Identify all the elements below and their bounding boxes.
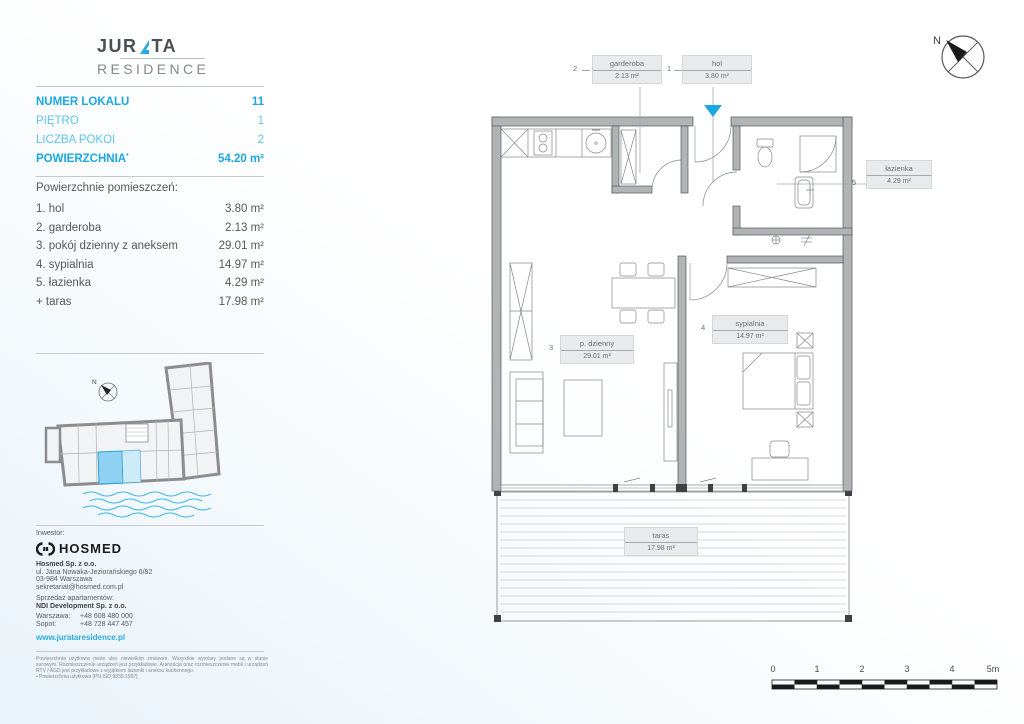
investor-details: Hosmed Sp. z o.o. ul. Jana Nowaka-Jezior… [36,561,264,611]
door-arcs [652,126,737,300]
investor-address-line1: ul. Jana Nowaka-Jeziorańskiego 6/82 [36,569,264,577]
sales-company: NDI Development Sp. z o.o. [36,603,127,610]
room-row-garderoba: 2. garderoba 2.13 m² [36,219,264,238]
kitchen-counter [501,129,611,157]
leader-lines [640,87,866,184]
summary-row-numer-lokalu: NUMER LOKALU 11 [36,92,264,111]
investor-email: sekretariat@hosmed.com.pl [36,584,264,592]
investor-heading: Inwestor: [36,530,64,538]
hosmed-logo: HOSMED [36,541,122,556]
sail-icon [139,40,151,55]
terrace-outline [497,492,849,621]
room-name: 1. hol [36,203,64,215]
sales-heading: Sprzedaż apartamentów: [36,595,264,603]
plan-label-p-dzienny: p. dzienny 29.01 m² [560,335,634,364]
entrance-arrow-icon [704,105,722,117]
room-name: 3. pokój dzienny z aneksem [36,240,178,252]
compass-icon [942,36,984,78]
scale-bar [772,680,997,689]
room-area: 14.97 m² [219,259,264,271]
mini-compass-label: N [92,379,97,386]
summary-value: 11 [252,96,264,108]
brand-text-jur: JUR [97,37,138,55]
room-row-taras: + taras 17.98 m² [36,293,264,312]
room-number-lazienka: 5 [852,178,856,187]
bedroom-furniture [728,268,816,480]
legal-note: Powierzchnia użytkowa może ulec niewielk… [36,656,268,680]
scale-label-1: 1 [814,664,819,674]
water-waves-icon [83,492,211,517]
plan-label-taras: taras 17.98 m² [624,527,698,556]
phone-number: +48 608 480 000 [80,613,216,621]
room-row-pokoj-dzienny: 3. pokój dzienny z aneksem 29.01 m² [36,237,264,256]
plan-label-lazienka: łazienka 4.29 m² [866,160,932,189]
legal-footnote: • Powierzchnia użytkowa [PN-ISO 9836:199… [36,674,268,680]
room-name: 2. garderoba [36,222,101,234]
phone-city-label: Sopot: [36,621,80,629]
phone-list: Warszawa: +48 608 480 000 Sopot: +48 728… [36,613,216,629]
summary-label: NUMER LOKALU [36,96,129,108]
mini-compass-icon [99,383,117,401]
room-name: 4. sypialnia [36,259,94,271]
scale-label-3: 3 [904,664,909,674]
room-area-list: Powierzchnie pomieszczeń: 1. hol 3.80 m²… [36,182,264,311]
room-area: 4.29 m² [225,277,264,289]
room-area: 17.98 m² [219,296,264,308]
room-number-hol: 1 [667,64,671,73]
scale-label-4: 4 [949,664,954,674]
summary-label: LICZBA POKOI [36,134,115,146]
logo-underline [120,58,205,59]
room-area: 3.80 m² [225,203,264,215]
room-name: 5. łazienka [36,277,91,289]
room-area: 29.01 m² [219,240,264,252]
divider [36,86,264,87]
investor-address-line2: 03-984 Warszawa [36,576,264,584]
divider [36,176,264,177]
room-list-heading: Powierzchnie pomieszczeń: [36,182,264,194]
summary-table: NUMER LOKALU 11 PIĘTRO 1 LICZBA POKOI 2 … [36,92,264,168]
footnote-marker: • [126,152,128,159]
room-number-sypialnia: 4 [701,323,705,332]
site-plan-map: N [38,362,266,520]
summary-row-liczba-pokoi: LICZBA POKOI 2 [36,130,264,149]
room-number-garderoba: 2 [573,64,577,73]
garderoba-wardrobe [621,130,636,184]
summary-value: 1 [258,115,264,127]
summary-value: 2 [258,134,264,146]
compass-north-label: N [933,35,941,47]
summary-label: POWIERZCHNIA• [36,152,129,165]
room-row-lazienka: 5. łazienka 4.29 m² [36,274,264,293]
room-area: 2.13 m² [225,222,264,234]
label-dash [674,70,682,71]
scale-label-0: 0 [770,664,775,674]
room-row-sypialnia: 4. sypialnia 14.97 m² [36,256,264,275]
bathroom-fixtures [757,136,836,246]
divider [36,651,264,652]
room-name: + taras [36,296,71,308]
summary-value: 54.20 m² [218,153,264,165]
scale-label-5m: 5m [987,664,1000,674]
brand-text-ta: TA [152,37,178,55]
divider [36,525,264,526]
plan-label-sypialnia: sypialnia 14.97 m² [712,315,788,344]
apartment-card-page: N JUR TA [0,0,1024,724]
phone-city-label: Warszawa: [36,613,80,621]
room-number-p-dzienny: 3 [549,343,553,352]
window-band [501,478,843,492]
hosmed-logo-icon [36,542,55,556]
room-row-hol: 1. hol 3.80 m² [36,200,264,219]
brand-logo: JUR TA [97,37,177,55]
investor-company: Hosmed Sp. z o.o. [36,561,96,568]
phone-number: +48 728 447 457 [80,621,216,629]
hosmed-logo-text: HOSMED [59,541,122,556]
highlighted-unit [98,451,123,484]
plan-label-hol: hol 3.80 m² [682,55,752,84]
plan-label-garderoba: garderoba 2.13 m² [592,55,662,84]
brand-subtitle: RESIDENCE [97,62,209,76]
summary-label: PIĘTRO [36,115,79,127]
summary-row-powierzchnia: POWIERZCHNIA• 54.20 m² [36,149,264,168]
divider [36,353,264,354]
legal-paragraph: Powierzchnia użytkowa może ulec niewielk… [36,656,268,674]
label-dash [582,70,590,71]
terrace-deck [500,500,846,612]
summary-row-pietro: PIĘTRO 1 [36,111,264,130]
walls [492,117,852,491]
scale-label-2: 2 [859,664,864,674]
website-link[interactable]: www.jurataresidence.pl [36,633,125,642]
